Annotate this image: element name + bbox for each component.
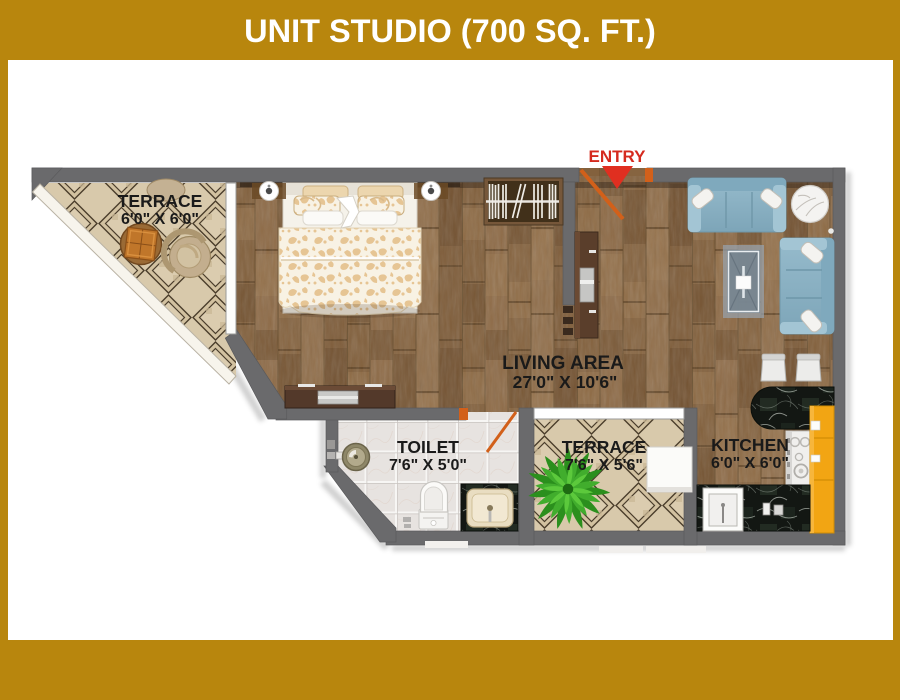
svg-text:KITCHEN: KITCHEN xyxy=(711,435,789,455)
svg-text:UNIT STUDIO (700 SQ. FT.): UNIT STUDIO (700 SQ. FT.) xyxy=(244,13,656,49)
svg-text:ENTRY: ENTRY xyxy=(589,147,647,166)
svg-text:27'0" X 10'6": 27'0" X 10'6" xyxy=(513,372,618,392)
svg-text:7'6" X 5'0": 7'6" X 5'0" xyxy=(389,457,467,474)
svg-text:6'0" X 6'0": 6'0" X 6'0" xyxy=(121,211,199,228)
svg-text:7'6" X 5'6": 7'6" X 5'6" xyxy=(565,457,643,474)
svg-text:TERRACE: TERRACE xyxy=(118,191,203,211)
svg-text:LIVING AREA: LIVING AREA xyxy=(502,353,624,374)
svg-text:TOILET: TOILET xyxy=(397,437,459,457)
svg-text:TERRACE: TERRACE xyxy=(562,437,647,457)
svg-text:6'0" X 6'0": 6'0" X 6'0" xyxy=(711,455,789,472)
